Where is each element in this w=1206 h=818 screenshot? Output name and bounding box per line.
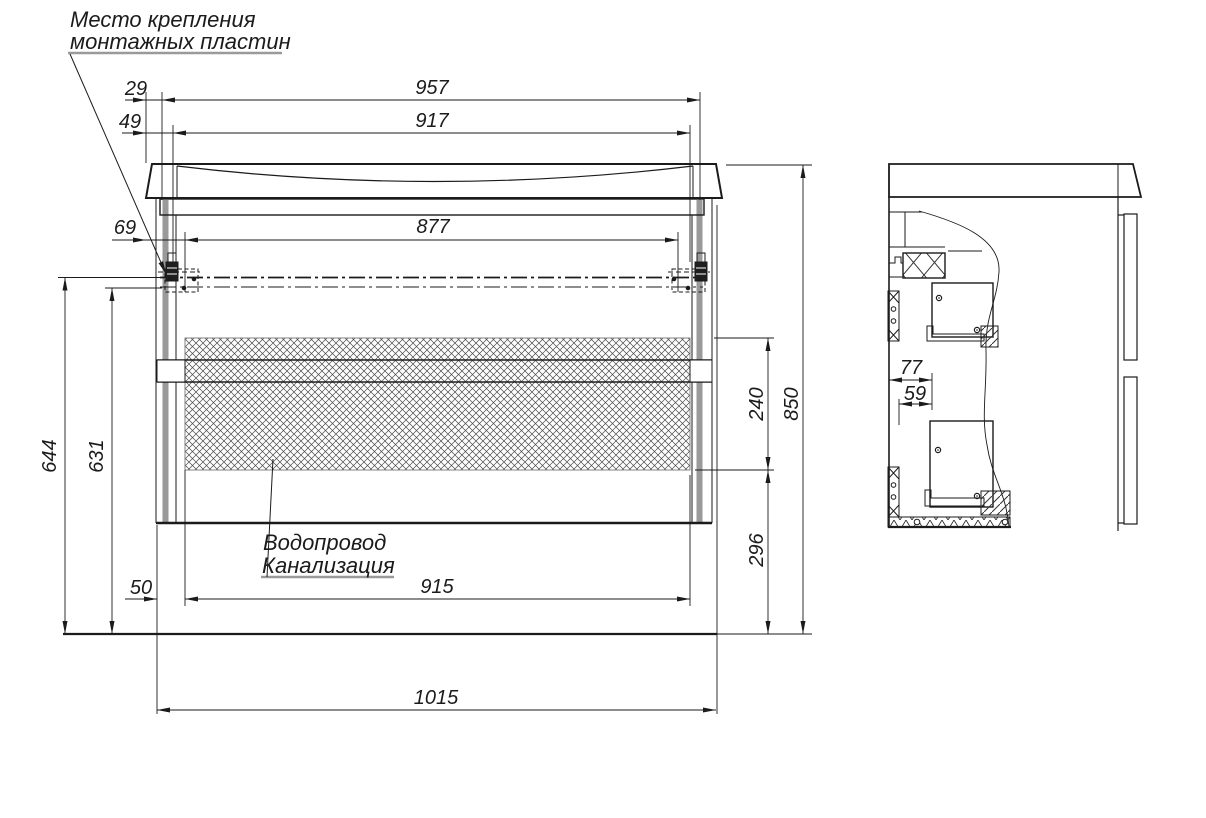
dim-850: 850 (781, 387, 803, 420)
technical-drawing-vanity-cabinet: Место крепления монтажных пластин Водопр… (0, 0, 1206, 818)
mounting-rail-lines (160, 278, 703, 288)
basin-curve (177, 166, 693, 182)
side-hatch-box (903, 253, 945, 278)
wall-hook (889, 257, 903, 277)
dim-59: 59 (904, 383, 926, 405)
drawing-svg: Место крепления монтажных пластин Водопр… (0, 0, 1206, 818)
upper-drawer-box (927, 283, 998, 347)
side-view (888, 164, 1141, 531)
side-drawer-fronts (1118, 214, 1137, 524)
dim-69: 69 (114, 217, 136, 239)
plumbing-callout-line1: Водопровод (263, 530, 386, 555)
dim-644: 644 (39, 439, 61, 472)
dim-77: 77 (900, 357, 923, 379)
side-bottom-strip (888, 517, 1011, 527)
dim-957: 957 (415, 77, 449, 99)
dim-915: 915 (420, 576, 454, 598)
dim-240: 240 (746, 387, 768, 421)
dim-631: 631 (86, 439, 108, 472)
side-countertop (889, 164, 1141, 197)
dim-296: 296 (746, 532, 768, 567)
lower-drawer-box (925, 421, 1010, 515)
mounting-callout-line2: монтажных пластин (70, 29, 291, 54)
dim-877: 877 (416, 216, 450, 238)
drawer-front-hatch (185, 338, 690, 470)
dim-49: 49 (119, 111, 141, 133)
callouts (68, 53, 394, 577)
dim-917: 917 (415, 110, 449, 132)
dim-50: 50 (130, 577, 152, 599)
apron-rail (160, 199, 704, 215)
dim-1015: 1015 (414, 687, 459, 709)
dim-29: 29 (124, 78, 147, 100)
plumbing-callout-line2: Канализация (262, 553, 395, 578)
